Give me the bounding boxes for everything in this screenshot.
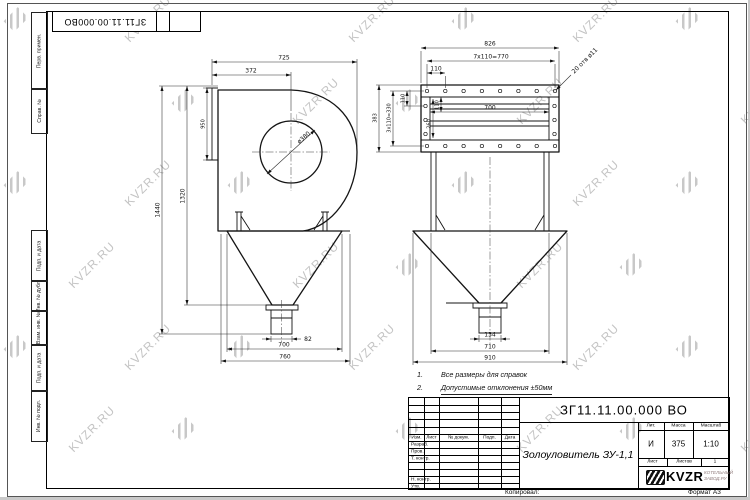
lit-label: Лит. <box>647 424 656 429</box>
holes-callout: 20 отв ø11 <box>571 47 600 76</box>
dim-label-910: 910 <box>484 355 496 362</box>
left-view-geometry <box>206 88 357 342</box>
dim-label-950: 950 <box>201 119 207 129</box>
dim-label-710: 710 <box>484 344 496 351</box>
row-razrab: Разраб. <box>411 442 428 447</box>
dim-label-134: 134 <box>484 332 496 339</box>
right-view-dimensions: 826 7x110=770 110 20 отв ø11 383 3x110=3… <box>373 41 600 366</box>
row-tkontr: Т. контр. <box>411 456 430 461</box>
drawing-sheet: KVZR.RUKVZR.RUKVZR.RUKVZR.RUKVZR.RUKVZR.… <box>0 0 748 497</box>
scale-label: Масштаб <box>701 424 722 429</box>
note-2: 2. Допустимые отклонения ±50мм <box>417 381 552 395</box>
row-utv: Утв. <box>411 484 420 489</box>
sheets-value: 1 <box>714 460 717 465</box>
sheets-label: Листов <box>676 460 692 465</box>
drawing-name: Золоуловитель ЗУ-1,1 <box>522 449 633 461</box>
note-2-number: 2. <box>417 381 441 395</box>
dim-label-1440: 1440 <box>155 202 162 217</box>
dim-label-770: 7x110=770 <box>473 54 508 61</box>
dim-label-700-inner: 700 <box>484 105 496 112</box>
scale-value: 1:10 <box>703 440 719 449</box>
row-prov: Пров. <box>411 449 424 454</box>
dim-label-dia380: ø380 <box>296 130 312 145</box>
row-nkontr: Н. контр. <box>411 477 431 482</box>
dim-label-700: 700 <box>278 342 290 349</box>
org-name: КОТЕЛЬНЫЙ ЗАВОД.РУ <box>704 470 733 481</box>
col-data: Дата <box>505 435 516 440</box>
org-name-line1: КОТЕЛЬНЫЙ <box>704 470 733 476</box>
drawing-designation: ЗГ11.11.00.000 ВО <box>560 403 688 418</box>
col-list: Лист <box>426 435 436 440</box>
org-name-line2: ЗАВОД.РУ <box>704 476 733 482</box>
note-2-text: Допустимые отклонения ±50мм <box>441 381 552 395</box>
kvzr-logo-text: KVZR <box>666 469 703 484</box>
bolt-holes <box>424 89 557 147</box>
sheet-label: Лист <box>647 460 657 465</box>
col-podp: Подп. <box>483 435 496 440</box>
drawing-viewer: KVZR.RUKVZR.RUKVZR.RUKVZR.RUKVZR.RUKVZR.… <box>0 0 750 500</box>
copied-label: Копировал: <box>505 489 539 496</box>
dim-label-383: 383 <box>373 113 379 123</box>
format-label: Формат А3 <box>688 489 721 496</box>
dim-label-330: 3x110=330 <box>387 103 393 132</box>
col-doc: № докум. <box>448 435 469 440</box>
dim-label-110-top: 110 <box>430 66 442 73</box>
kvzr-logo-icon <box>646 470 665 485</box>
dim-label-760: 760 <box>279 354 291 361</box>
col-izm: Изм. <box>411 435 421 440</box>
dim-label-725: 725 <box>278 55 290 62</box>
note-1: 1. Все размеры для справок <box>417 368 552 381</box>
dim-label-110-inner: 110 <box>435 100 441 110</box>
mass-value: 375 <box>672 440 685 449</box>
dim-label-82: 82 <box>304 336 312 343</box>
note-1-text: Все размеры для справок <box>441 368 527 381</box>
dim-label-260: 260 <box>427 119 433 129</box>
left-view-dimensions: 725 372 950 1440 1320 ø380 82 700 760 <box>155 55 358 365</box>
dim-label-372: 372 <box>245 68 257 75</box>
dim-label-1320: 1320 <box>180 188 187 203</box>
right-view-geometry <box>413 85 567 344</box>
dim-label-110-left: 110 <box>401 94 407 104</box>
mass-label: Масса <box>671 424 685 429</box>
lit-value: И <box>648 440 654 449</box>
notes: 1. Все размеры для справок 2. Допустимые… <box>417 368 552 395</box>
dim-label-826: 826 <box>484 41 496 48</box>
title-block: Изм. Лист № докум. Подп. Дата Разраб. Пр… <box>408 397 730 490</box>
note-1-number: 1. <box>417 368 441 381</box>
